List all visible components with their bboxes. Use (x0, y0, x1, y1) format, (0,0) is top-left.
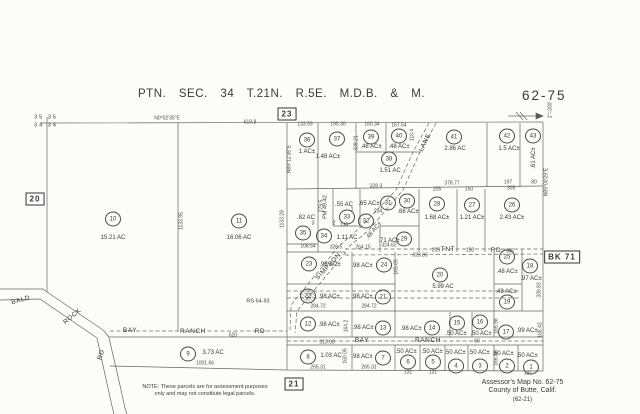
parcel-number-circle: 16 (472, 315, 488, 330)
parcel-number-circle: 26 (504, 198, 520, 213)
parcel-number-circle: 19 (499, 295, 515, 310)
parcel-number-circle: 13 (375, 321, 391, 336)
parcel-number-circle: 8 (300, 350, 316, 365)
measurement-label: 323.83 (412, 254, 427, 259)
measurement-label: 284.72 (310, 305, 325, 310)
parcel-area-label: 16.06 AC (227, 235, 252, 241)
survey-reference-label: PM 49-42 (323, 195, 329, 219)
road-name-label: BAY (355, 338, 369, 345)
scale-label: 1"=200' (549, 102, 554, 119)
survey-reference-label: RS 64-93 (246, 299, 269, 305)
parcel-number-circle: 41 (446, 130, 462, 145)
parcel-area-label: .50 AC± (492, 351, 513, 357)
parcel-number-circle: 2 (499, 359, 515, 374)
parcel-number-circle: 32 (358, 214, 374, 229)
measurement-label: 60 (474, 340, 480, 345)
road-name-label: RD (255, 329, 266, 336)
parcel-number-circle: 34 (316, 229, 332, 244)
parcel-area-label: .98 AC± (352, 325, 373, 331)
parcel-number-circle: 7 (375, 351, 391, 366)
parcel-number-circle: 11 (231, 214, 247, 229)
measurement-label: 164.2 (345, 320, 350, 333)
parcel-number-circle: 1 (523, 360, 539, 375)
parcel-number-circle: 3 (472, 359, 488, 374)
bearing-label: N89°12'38"E (288, 145, 293, 173)
parcel-number-circle: 31 (380, 196, 396, 211)
map-number: 62-75 (522, 88, 567, 103)
measurement-label: 110.4 (411, 129, 416, 141)
parcel-area-label: .99 AC± (516, 328, 537, 334)
parcel-area-label: .98 AC± (319, 262, 340, 268)
disclaimer-note: NOTE: These parcels are for assessment p… (110, 384, 300, 397)
parcel-area-label: 1.11 AC (337, 235, 358, 241)
parcel-area-label: .82 AC (297, 215, 315, 221)
parcel-area-label: .98 AC± (351, 263, 372, 269)
parcel-area-label: 1.51 AC (379, 168, 400, 174)
parcel-number-circle: 17 (498, 325, 514, 340)
measurement-label: 165.65 (395, 259, 400, 274)
parcel-number-circle: 25 (499, 250, 515, 265)
parcel-area-label: .50 AC± (395, 349, 416, 355)
county-line: County of Butte, Calif. (430, 387, 615, 395)
measurement-label: 150 (466, 249, 474, 254)
parcel-area-label: .68 AC± (397, 209, 418, 215)
measurement-label: 195.30 (330, 123, 345, 128)
section-number: 35 35 (34, 115, 58, 121)
measurement-label: 265.31 (361, 366, 376, 371)
measurement-label: 160.05 (344, 348, 349, 363)
measurement-label: 620 (229, 334, 237, 339)
parcel-area-label: 5.99 AC (432, 284, 453, 290)
parcel-number-circle: 4 (448, 359, 464, 374)
measurement-label: 204 (374, 210, 382, 215)
parcel-number-circle: 22 (300, 289, 316, 304)
parcel-number-circle: 33 (339, 210, 355, 225)
parcel-area-label: 2.43 AC± (500, 215, 525, 221)
parcel-area-label: 1.03 AC (320, 353, 341, 359)
parcel-area-label: .50 AC± (445, 331, 466, 337)
road-name-label: TNT (441, 247, 455, 254)
measurement-label: 305 (507, 187, 515, 192)
measurement-label: 328.21 (355, 135, 360, 150)
parcel-number-circle: 6 (400, 355, 416, 370)
parcel-area-label: .61 AC± (531, 147, 537, 168)
lot-number: 2 (333, 222, 336, 227)
assessor-map-line: Assessor's Map No. 62-75 (430, 379, 615, 387)
measurement-label: 160.34 (364, 123, 379, 128)
parcel-area-label: .48 AC± (360, 144, 381, 150)
parcel-number-circle: 30 (399, 194, 415, 209)
parcel-area-label: 1.21 AC± (460, 215, 485, 221)
adjacent-map-reference: 21 (285, 378, 304, 391)
road-name-label: BAY (123, 328, 137, 335)
measurement-label: 619.8 (244, 121, 257, 126)
parcel-area-label: 1.68 AC± (425, 215, 450, 221)
bearing-label: N0°02'35"E (154, 117, 180, 122)
parcel-area-label: 3.73 AC (202, 350, 223, 356)
parcel-number-circle: 35 (295, 226, 311, 241)
measurement-label: 328.5 (330, 246, 343, 251)
adjacent-map-reference: 20 (26, 193, 45, 206)
parcel-area-label: .98 AC± (351, 354, 372, 360)
measurement-label: 1001.66 (196, 362, 214, 367)
parcel-area-label: .50 AC± (468, 350, 489, 356)
parcel-area-label: .65 AC± (358, 201, 379, 207)
map-title: PTN. SEC. 34 T.21N. R.5E. M.D.B. & M. (138, 88, 425, 100)
measurement-label: 133.59 (297, 123, 312, 128)
parcel-area-label: .98 AC± (318, 322, 339, 328)
parcel-area-label: 1.5 AC± (498, 146, 519, 152)
assessor-parcel-map: PTN. SEC. 34 T.21N. R.5E. M.D.B. & M. 62… (0, 0, 640, 414)
parcel-area-label: .48 AC± (495, 289, 516, 295)
measurement-label: 330.83 (538, 282, 543, 297)
parcel-area-label: 15.21 AC (101, 235, 126, 241)
parcel-area-label: .71 AC± (378, 238, 399, 244)
parcel-number-circle: 23 (301, 257, 317, 272)
parcel-area-label: .50 AC± (470, 331, 491, 337)
parcel-number-circle: 18 (522, 259, 538, 274)
parcel-area-label: .48 AC± (496, 269, 517, 275)
adjacent-map-reference: BK 71 (544, 251, 580, 264)
parcel-number-circle: 9 (180, 347, 196, 362)
adjacent-map-reference: 23 (278, 108, 297, 121)
parcel-number-circle: 20 (432, 268, 448, 283)
parcel-area-label: .98 AC± (400, 326, 421, 332)
section-number: 34 34 (34, 123, 58, 129)
parcel-number-circle: 10 (105, 212, 121, 227)
measurement-label: 150 (465, 188, 473, 193)
measurement-label: 1133.28 (281, 210, 286, 228)
road-name-label: RANCH (415, 338, 441, 345)
parcel-number-circle: 27 (464, 198, 480, 213)
parcel-number-circle: 39 (363, 130, 379, 145)
measurement-label: 284.72 (361, 305, 376, 310)
measurement-label: 378.77 (444, 182, 459, 187)
parcel-number-circle: 14 (424, 321, 440, 336)
parcel-area-label: .98 AC± (351, 294, 372, 300)
note-line1: NOTE: These parcels are for assessment p… (110, 384, 300, 391)
measurement-label: 205 (433, 188, 441, 193)
measurement-label: 205 (432, 249, 440, 254)
parcel-number-circle: 42 (499, 129, 515, 144)
measurement-label: 108.54 (300, 245, 315, 250)
parcel-area-label: .50 AC± (421, 349, 442, 355)
parcel-number-circle: 12 (300, 317, 316, 332)
measurement-label: 324.62 (381, 244, 396, 249)
bearing-label: N89°00'29"E (545, 168, 550, 196)
parcel-number-circle: 38 (381, 152, 397, 167)
parcel-number-circle: 36 (299, 133, 315, 148)
measurement-label: 313.98 (319, 341, 334, 346)
measurement-label: 1133.95 (180, 212, 185, 230)
parcel-number-circle: 37 (329, 132, 345, 147)
lot-number: 3 (312, 222, 315, 227)
parcel-area-label: .55 AC (335, 202, 353, 208)
parcel-area-label: .98 AC± (318, 294, 339, 300)
parcel-area-label: .50 AC± (444, 350, 465, 356)
parcel-number-circle: 24 (376, 258, 392, 273)
parcel-number-circle: 28 (429, 197, 445, 212)
parcel-area-label: 2.86 AC (444, 146, 465, 152)
measurement-label: 328.3 (370, 185, 383, 190)
measurement-label: 166.43 (539, 322, 544, 337)
parcel-number-circle: 5 (425, 355, 441, 370)
measurement-label: 80 (531, 181, 537, 186)
parcel-number-circle: 21 (375, 290, 391, 305)
measurement-label: 265.31 (310, 366, 325, 371)
parcel-area-label: .97 AC± (520, 276, 541, 282)
measurement-label: 131 (429, 371, 437, 376)
book-page-ref: (62-21) (430, 397, 615, 404)
parcel-area-label: 1 AC± (299, 149, 315, 155)
credits-block: Assessor's Map No. 62-75 County of Butte… (430, 379, 615, 404)
parcel-area-label: .50 AC± (516, 353, 537, 359)
parcel-number-circle: 15 (449, 316, 465, 331)
parcel-area-label: 1.48 AC± (316, 154, 341, 160)
parcel-area-label: .48 AC± (388, 144, 409, 150)
measurement-label: 131 (404, 371, 412, 376)
parcel-number-circle: 43 (525, 129, 541, 144)
note-line2: only and may not constitute legal parcel… (110, 391, 300, 398)
road-name-label: RANCH (180, 329, 206, 336)
measurement-label: 264.15 (355, 246, 370, 251)
parcel-number-circle: 40 (391, 129, 407, 144)
